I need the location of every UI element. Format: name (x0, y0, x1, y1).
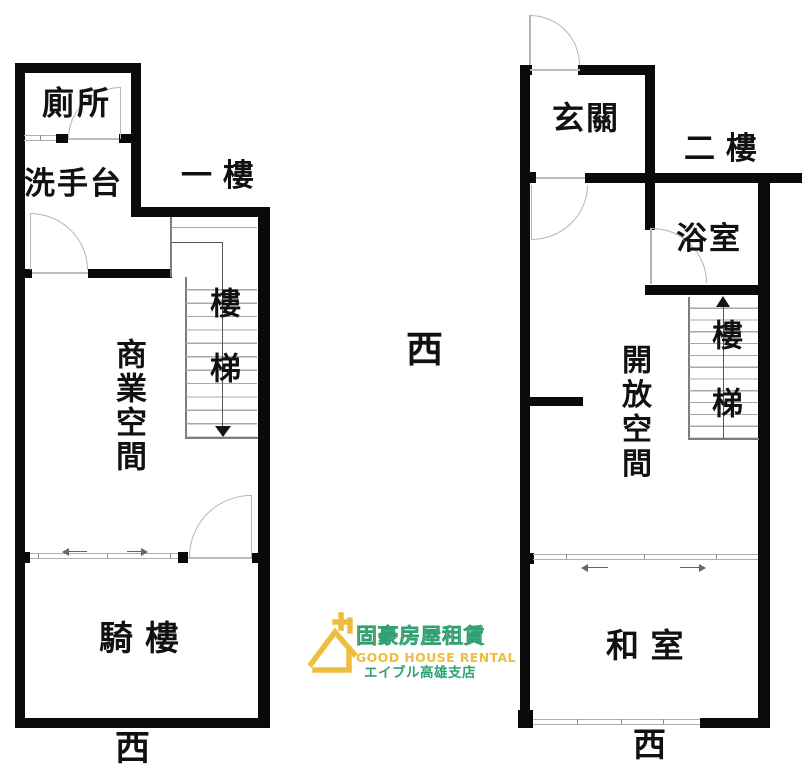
wall (520, 172, 536, 183)
wall (131, 207, 267, 217)
entrance-top-door-leaf (529, 15, 531, 65)
slide-arrow-stem (127, 551, 142, 552)
slide-arrow-left-icon (62, 548, 69, 556)
floor1-compass-west: 西 (115, 732, 150, 767)
stair-boundary (170, 217, 172, 277)
stairs-label: 樓梯 (206, 287, 237, 417)
stairs-label: 樓梯 (708, 319, 739, 455)
wall (56, 134, 68, 143)
logo-name-en: GOOD HOUSE RENTAL (356, 652, 516, 665)
bathroom-door-leaf (650, 228, 652, 284)
door-threshold (32, 272, 90, 274)
wall (20, 552, 30, 563)
wall (131, 63, 141, 217)
wall (645, 65, 655, 183)
window-tick (644, 554, 645, 559)
logo-branch-jp: エイブル高雄支店 (364, 667, 476, 681)
door-threshold (536, 177, 585, 179)
wall (15, 63, 25, 728)
logo-name-zh: 固豪房屋租賃 (356, 626, 485, 647)
wall (700, 718, 770, 728)
stair-arrow-down-icon (215, 426, 231, 437)
stair-tread (171, 227, 257, 228)
floor2-compass-west: 西 (633, 728, 666, 761)
toilet-label: 廁所 (42, 87, 112, 119)
entrance-inner-door-leaf (531, 185, 533, 240)
stair-boundary (185, 437, 258, 439)
window-tick (170, 553, 171, 558)
stair-arrow-up-icon (716, 296, 730, 307)
floor2-title: 二 樓 (684, 134, 757, 165)
commercial-space-label: 商業空間 (112, 338, 143, 474)
arcade-label: 騎 樓 (99, 622, 179, 656)
washbasin-label: 洗手台 (24, 169, 123, 200)
floor1-title: 一 樓 (181, 161, 254, 192)
stair-arrow-stem (172, 242, 223, 243)
wall (252, 553, 262, 563)
window-tick (40, 135, 41, 140)
window-tick (577, 719, 578, 724)
wall (520, 397, 583, 406)
entrance-inner-door-arc (531, 185, 588, 240)
slide-arrow-right-icon (699, 564, 706, 572)
slide-arrow-stem (69, 551, 87, 552)
wall (645, 183, 655, 230)
tatami-room-label: 和 室 (606, 629, 684, 662)
wall (88, 269, 172, 278)
slide-arrow-stem (588, 567, 608, 568)
entrance-label: 玄關 (552, 102, 620, 134)
window-tick (663, 719, 664, 724)
slide-arrow-right-icon (141, 548, 148, 556)
open-space-label: 開放空間 (618, 344, 648, 482)
wall (578, 65, 655, 75)
wall (645, 285, 770, 295)
entrance-top-door-arc (530, 15, 580, 65)
bathroom-label: 浴室 (676, 224, 742, 255)
house-logo-icon (308, 612, 358, 676)
wall (15, 718, 270, 728)
wall (22, 269, 32, 278)
toilet-door-leaf (120, 87, 122, 139)
wall (15, 63, 141, 73)
slide-arrow-left-icon (581, 564, 588, 572)
slide-arrow-stem (680, 567, 700, 568)
sliding-door-line (30, 553, 180, 559)
washbasin-door-arc (30, 213, 88, 270)
wall (178, 552, 188, 563)
wall (258, 207, 270, 728)
wall (758, 173, 770, 728)
window-tick (621, 719, 622, 724)
door-threshold (188, 557, 258, 559)
floor-plan-image: 樓梯 廁所 洗手台 一 樓 商業空間 騎 樓 西 (0, 0, 802, 768)
window-tick (716, 554, 717, 559)
window-tick (566, 554, 567, 559)
center-compass-west: 西 (406, 331, 443, 368)
window-tick (107, 553, 108, 558)
window-tick (38, 553, 39, 558)
arcade-door-leaf (251, 495, 253, 557)
washbasin-door-leaf (30, 213, 32, 270)
arcade-door-arc (189, 495, 251, 557)
window-line (533, 719, 700, 725)
door-threshold (530, 69, 580, 71)
wall (518, 710, 533, 728)
